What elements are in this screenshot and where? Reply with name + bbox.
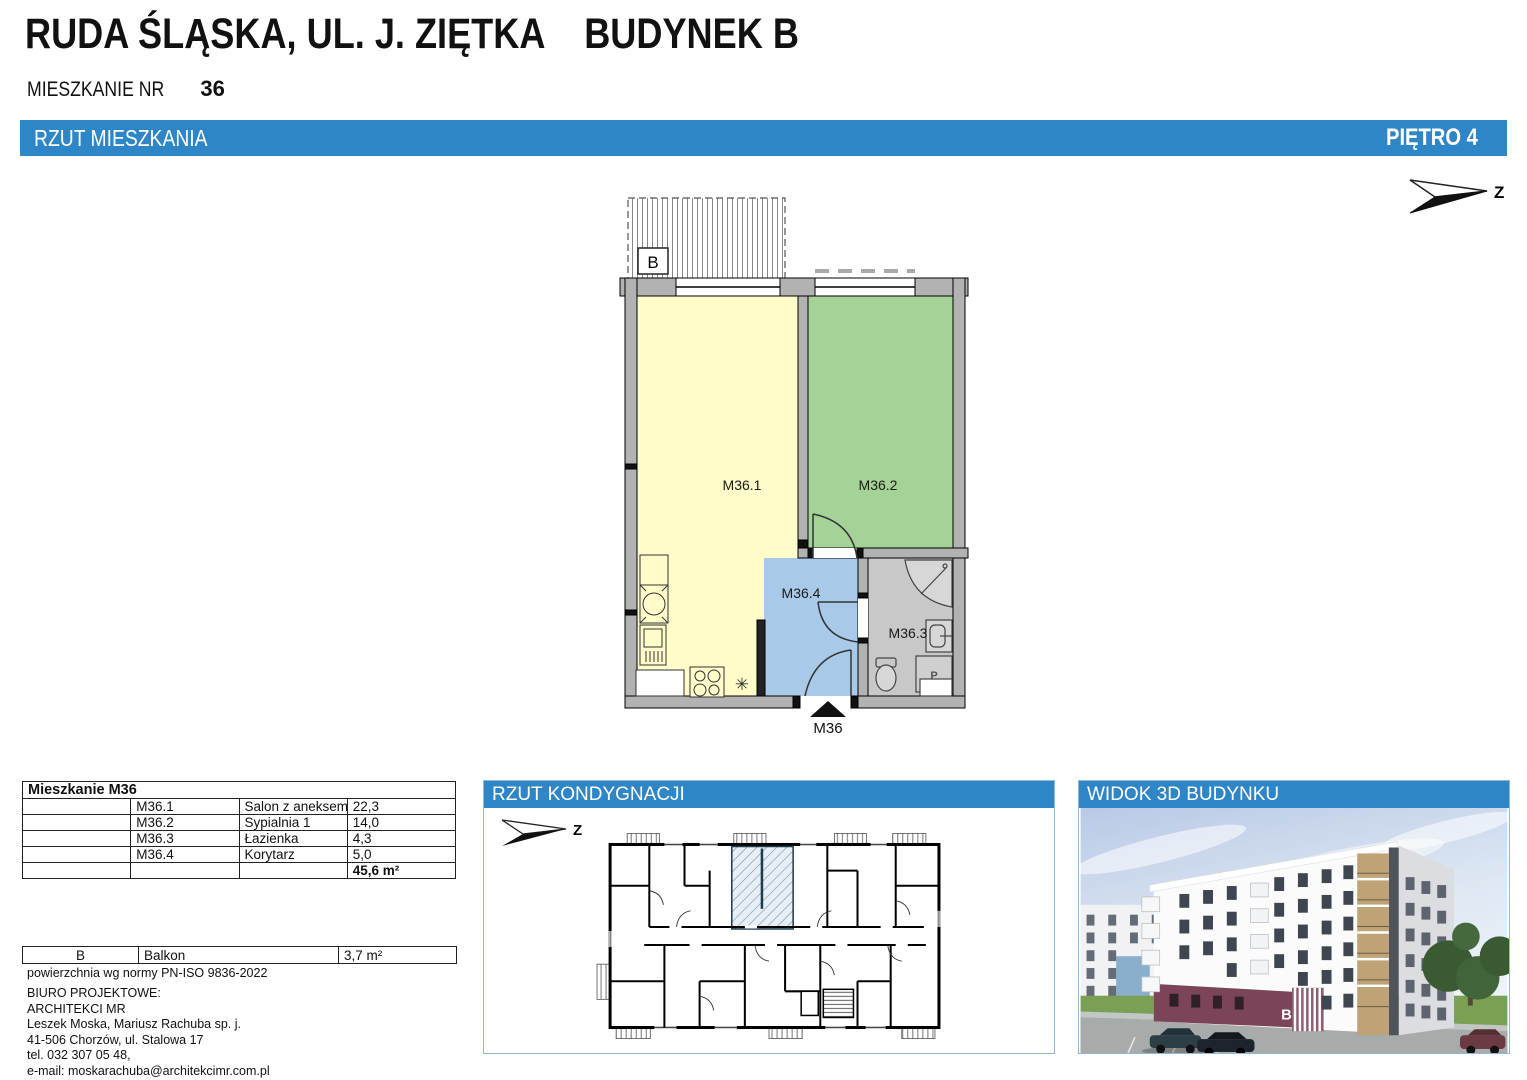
building-render: B [1079, 808, 1509, 1053]
room-m36-2-fill [808, 296, 953, 548]
row-name: Salon z aneksem kuchennym [239, 799, 347, 815]
boiler-icon: ✳ [735, 675, 749, 694]
row-name: Łazienka [239, 831, 347, 847]
apartment-plan-svg: B [590, 170, 1010, 755]
north-label: Z [573, 822, 582, 839]
storey-plan-body: Z [484, 808, 1054, 1053]
total-area: 45,6 m² [347, 863, 455, 879]
storey-elevator [801, 991, 818, 1015]
area-norm-footnote: powierzchnia wg normy PN-ISO 9836-2022 [27, 966, 267, 980]
car [1460, 1035, 1505, 1049]
storey-plan-header: RZUT KONDYGNACJI [484, 781, 1054, 808]
wall-bottom-right [851, 696, 965, 708]
shaft-bath [920, 679, 952, 696]
view-3d-header: WIDOK 3D BUDYNKU [1079, 781, 1509, 808]
storey-plan-panel: RZUT KONDYGNACJI Z [483, 780, 1055, 1054]
balcony-name: Balkon [139, 947, 339, 964]
row-code: M36.4 [131, 847, 239, 863]
room-label-m36-1: M36.1 [723, 477, 762, 493]
balcony-table: B Balkon 3,7 m² [22, 946, 457, 964]
view-3d-body: B [1079, 808, 1509, 1053]
highlighted-unit-m36 [732, 846, 793, 928]
apartment-label: MIESZKANIE NR [27, 78, 164, 102]
apartment-subtitle: MIESZKANIE NR36 [27, 76, 225, 102]
table-row: B Balkon 3,7 m² [23, 947, 457, 964]
row-area: 5,0 [347, 847, 455, 863]
balcony-column-tan [1357, 853, 1389, 1035]
wall-living-bedroom [798, 296, 808, 548]
row-code: M36.1 [131, 799, 239, 815]
design-office-block: BIURO PROJEKTOWE: ARCHITEKCI MR Leszek M… [27, 986, 270, 1079]
office-line: 41-506 Chorzów, ul. Stalowa 17 [27, 1033, 270, 1049]
office-line: e-mail: moskarachuba@architekcimr.com.pl [27, 1064, 270, 1080]
balcony: B [628, 198, 785, 282]
kitchen-counter [640, 555, 668, 585]
toilet [876, 665, 896, 691]
row-name: Korytarz [239, 847, 347, 863]
north-arrow-storey: Z [496, 812, 591, 852]
north-label: Z [1494, 183, 1504, 202]
balcony-code: B [23, 947, 139, 964]
row-code: M36.3 [131, 831, 239, 847]
office-line: Leszek Moska, Mariusz Rachuba sp. j. [27, 1017, 270, 1033]
section-bar: RZUT MIESZKANIA PIĘTRO 4 [20, 120, 1507, 156]
row-area: 4,3 [347, 831, 455, 847]
row-code: M36.2 [131, 815, 239, 831]
shaft-kitchen [636, 670, 684, 696]
office-line: ARCHITEKCI MR [27, 1002, 270, 1018]
balcony-area: 3,7 m² [339, 947, 457, 964]
wall-left [625, 278, 637, 708]
wall-bottom-left [625, 696, 800, 708]
area-table-title: Mieszkanie M36 [23, 782, 456, 799]
building-letter: B [1281, 1007, 1292, 1023]
room-label-m36-4: M36.4 [782, 585, 821, 601]
entrance-label: M36 [813, 720, 842, 737]
entrance-slats [1292, 988, 1324, 1031]
room-m36-4-fill [764, 558, 858, 696]
view-3d-panel: WIDOK 3D BUDYNKU [1078, 780, 1510, 1054]
storey-plan-title: RZUT KONDYGNACJI [492, 784, 685, 806]
office-line: tel. 032 307 05 48, [27, 1048, 270, 1064]
row-area: 22,3 [347, 799, 455, 815]
area-table-header: Mieszkanie M36 [23, 782, 456, 799]
balcony-label: B [647, 253, 658, 272]
table-row: M36.3 Łazienka 4,3 [23, 831, 456, 847]
table-row: M36.2 Sypialnia 1 14,0 [23, 815, 456, 831]
north-arrow-main: Z [1402, 170, 1507, 220]
storey-plan-svg [594, 830, 946, 1042]
page-title: RUDA ŚLĄSKA, UL. J. ZIĘTKA BUDYNEK B [25, 10, 946, 59]
room-label-m36-3: M36.3 [889, 625, 928, 641]
storey-stairs [801, 989, 853, 1017]
kitchen-sink-unit [640, 585, 668, 623]
view-3d-title: WIDOK 3D BUDYNKU [1087, 784, 1279, 806]
apartment-number: 36 [200, 76, 224, 101]
page-title-text: RUDA ŚLĄSKA, UL. J. ZIĘTKA BUDYNEK B [25, 10, 799, 59]
area-table: Mieszkanie M36 M36.1 Salon z aneksem kuc… [22, 781, 456, 879]
wall-corridor-left [757, 620, 765, 696]
table-row: M36.1 Salon z aneksem kuchennym 22,3 [23, 799, 456, 815]
office-line: BIURO PROJEKTOWE: [27, 986, 270, 1002]
row-area: 14,0 [347, 815, 455, 831]
entrance-marker: M36 [810, 701, 846, 737]
section-bar-right-label: PIĘTRO 4 [1386, 124, 1478, 152]
sheet-page: RUDA ŚLĄSKA, UL. J. ZIĘTKA BUDYNEK B MIE… [0, 0, 1527, 1080]
row-name: Sypialnia 1 [239, 815, 347, 831]
area-table-total-row: 45,6 m² [23, 863, 456, 879]
apartment-plan: B [590, 170, 1010, 755]
section-bar-left-label: RZUT MIESZKANIA [34, 125, 208, 152]
room-label-m36-2: M36.2 [859, 477, 898, 493]
table-row: M36.4 Korytarz 5,0 [23, 847, 456, 863]
wall-right [953, 278, 965, 708]
corner-strip [1389, 848, 1399, 1036]
